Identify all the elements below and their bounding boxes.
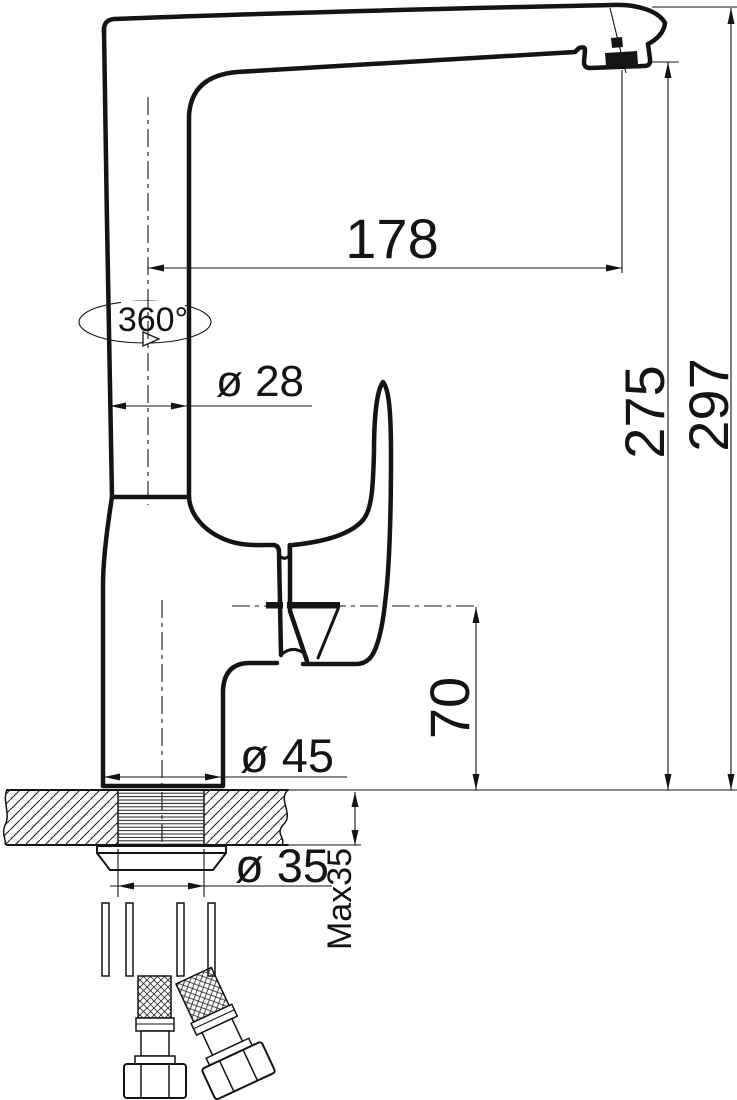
supply-tube-wall bbox=[102, 903, 109, 976]
mounting-nut bbox=[97, 846, 226, 870]
label-spout-reach: 178 bbox=[345, 207, 438, 270]
supply-tube-wall bbox=[177, 903, 184, 976]
spout-underside-and-aerator bbox=[189, 44, 650, 497]
faucet-outline bbox=[103, 5, 665, 786]
aerator-tab bbox=[611, 37, 623, 48]
arrowhead-icon bbox=[352, 830, 359, 845]
arrowhead-icon bbox=[171, 403, 187, 410]
drawing-svg: 178 360° ø 28 275 297 70 ø 45 ø 35 Max35 bbox=[0, 0, 737, 1100]
arrowhead-icon bbox=[728, 8, 735, 24]
arrowhead-icon bbox=[473, 607, 480, 623]
deck-hatch-left bbox=[4, 790, 118, 845]
label-base-diameter: ø 45 bbox=[240, 729, 334, 782]
hose-neck bbox=[141, 1031, 169, 1056]
handle-crease-line bbox=[318, 609, 338, 658]
arrowhead-icon bbox=[665, 62, 672, 78]
arrowhead-icon bbox=[118, 883, 134, 890]
arrowhead-icon bbox=[606, 265, 622, 272]
label-swivel-angle: 360° bbox=[118, 301, 188, 339]
supply-hoses bbox=[124, 962, 276, 1100]
spout-top-edge bbox=[104, 5, 665, 44]
supply-tube-wall bbox=[208, 903, 215, 976]
faucet-technical-drawing: 178 360° ø 28 275 297 70 ø 45 ø 35 Max35 bbox=[0, 0, 737, 1100]
arrowhead-icon bbox=[104, 774, 120, 781]
mounting-hardware bbox=[97, 846, 226, 976]
hex-nut bbox=[124, 1064, 186, 1098]
supply-tube-wall bbox=[126, 903, 133, 976]
neck-shoulder bbox=[189, 497, 281, 655]
arrowhead-icon bbox=[665, 774, 672, 790]
label-overall-height: 297 bbox=[677, 358, 737, 451]
label-spout-outlet-height: 275 bbox=[613, 365, 676, 458]
cartridge-joint-bar bbox=[266, 602, 283, 609]
label-column-diameter: ø 28 bbox=[216, 357, 304, 406]
left-hose bbox=[124, 976, 186, 1098]
label-max-deck-thickness: Max35 bbox=[321, 848, 359, 950]
label-body-height: 70 bbox=[418, 677, 481, 739]
arrowhead-icon bbox=[473, 774, 480, 790]
centerlines bbox=[148, 8, 626, 868]
arrowhead-icon bbox=[352, 792, 359, 807]
arrowhead-icon bbox=[148, 265, 164, 272]
body-left-edge bbox=[103, 30, 112, 786]
arrowhead-icon bbox=[205, 774, 221, 781]
braided-hose bbox=[138, 976, 171, 1018]
label-tailpiece-diameter: ø 35 bbox=[235, 839, 329, 892]
aerator-outlet bbox=[605, 51, 638, 66]
tailpiece-threads bbox=[118, 791, 204, 845]
cartridge-joint-bar bbox=[287, 602, 340, 609]
deck-hatch-right bbox=[204, 790, 288, 845]
countertop-section bbox=[4, 790, 288, 845]
lever-handle-blade bbox=[293, 382, 391, 664]
hose-flange bbox=[135, 1056, 175, 1064]
arrowhead-icon bbox=[188, 883, 204, 890]
arrowhead-icon bbox=[728, 774, 735, 790]
body-dome-arc bbox=[282, 649, 302, 654]
